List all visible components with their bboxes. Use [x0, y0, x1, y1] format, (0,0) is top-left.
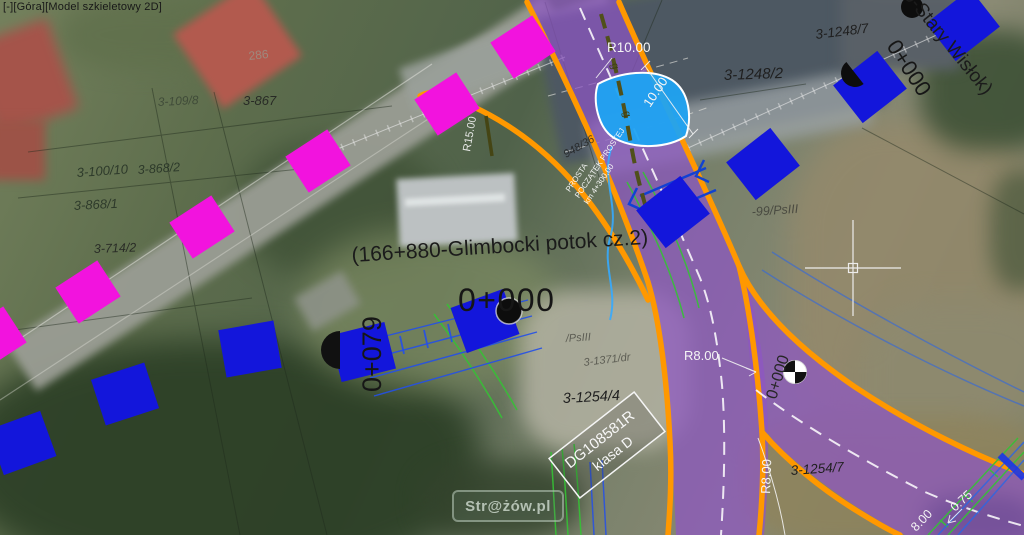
parcel-867[interactable]: 3-867 [243, 93, 277, 108]
label-glimbocki[interactable]: (166+880-Glimbocki potok cz.2) [351, 226, 649, 267]
parcel-868-2[interactable]: 3-868/2 [137, 160, 180, 177]
dim-r8-side[interactable]: R8.00 [758, 459, 774, 494]
parcel-948[interactable]: 948/36 [562, 133, 598, 161]
parcel-1248-2[interactable]: 3-1248/2 [724, 65, 784, 84]
dim-r15[interactable]: R15.00 [461, 115, 479, 152]
parcel-868-1[interactable]: 3-868/1 [73, 196, 118, 213]
label-km-0079[interactable]: 0+079 [357, 316, 387, 392]
cad-viewport[interactable]: g g [0, 0, 1024, 535]
parcel-1254-4[interactable]: 3-1254/4 [562, 388, 620, 407]
parcel-714[interactable]: 3-714/2 [94, 241, 137, 256]
dim-r8-top[interactable]: R8.00 [684, 348, 719, 363]
parcel-psiii[interactable]: /PsIII [564, 331, 591, 345]
watermark-text: Str@żów.pl [465, 498, 551, 515]
parcel-99-psiii[interactable]: -99/PsIII [751, 202, 799, 219]
roof-number: 286 [248, 47, 270, 63]
crosshair-cursor [805, 220, 901, 316]
road-class-box[interactable]: DG108581R klasa D [549, 392, 665, 498]
label-km-0000[interactable]: 0+000 [458, 282, 555, 318]
parcel-1371[interactable]: 3-1371/dr [583, 351, 633, 369]
parcel-1248-7[interactable]: 3-1248/7 [815, 21, 870, 42]
viewport-controls-label[interactable]: [-][Góra][Model szkieletowy 2D] [3, 1, 162, 13]
parcel-109[interactable]: 3-109/8 [157, 93, 199, 109]
drawing-canvas[interactable]: g g [0, 0, 1024, 535]
half-disc-marker[interactable] [321, 331, 340, 369]
watermark-badge: Str@żów.pl [452, 490, 564, 522]
dim-r10[interactable]: R10.00 [607, 40, 651, 55]
parcel-100[interactable]: 3-100/10 [76, 161, 129, 180]
